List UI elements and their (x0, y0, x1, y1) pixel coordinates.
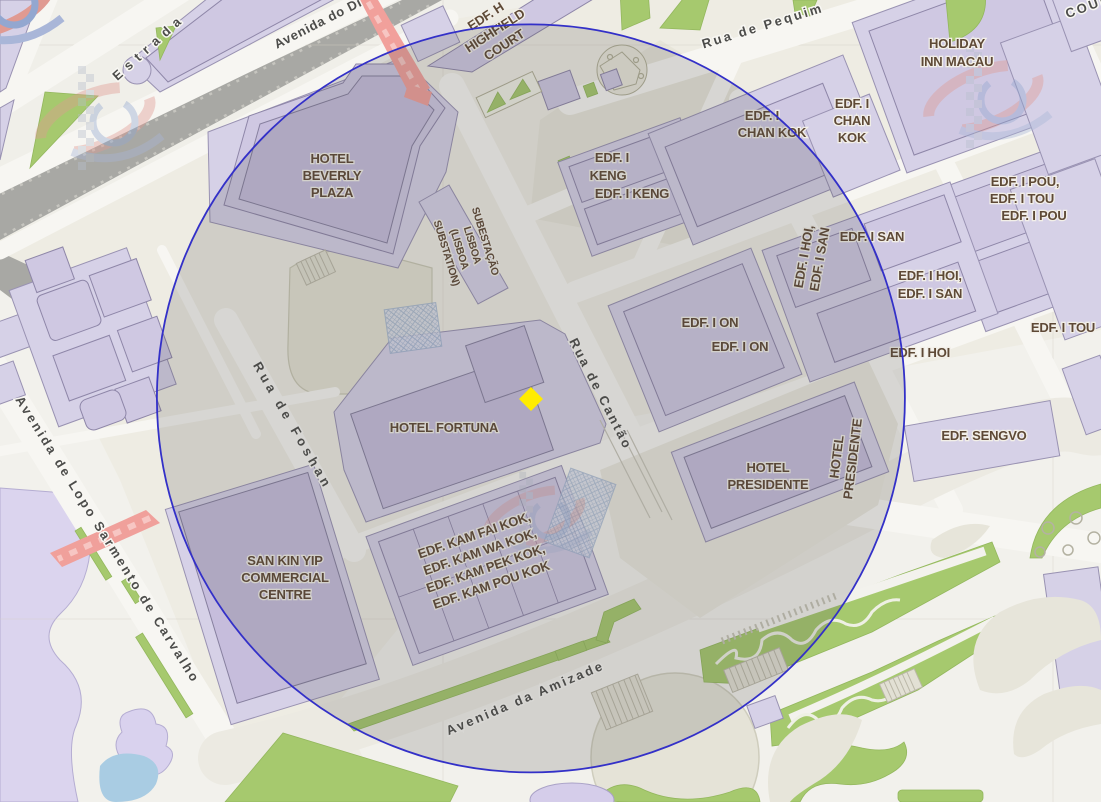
svg-text:EDF. I TOU: EDF. I TOU (1031, 320, 1095, 335)
svg-text:EDF. ICHANKOK: EDF. ICHANKOK (834, 96, 871, 145)
svg-text:EDF. SENGVO: EDF. SENGVO (941, 428, 1026, 443)
